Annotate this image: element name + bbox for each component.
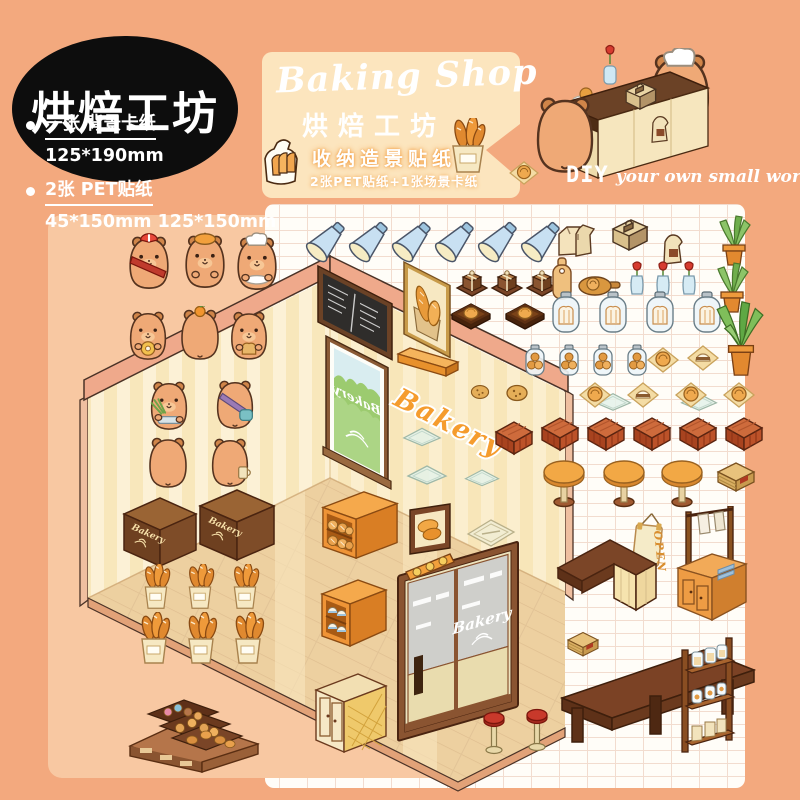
banner-tagline: DIY your own small world	[566, 163, 800, 188]
spec-size: 125*190mm	[45, 146, 276, 166]
backdrop-card	[48, 215, 265, 778]
bullet-icon	[26, 121, 35, 130]
spec-size: 45*150mm 125*150mm	[45, 212, 276, 232]
capybara-customer-sticker	[538, 99, 592, 172]
banner-title-zh: 烘焙工坊	[302, 106, 446, 143]
spec-list: 一张 背景卡纸 125*190mm 2张 PET贴纸 45*150mm 125*…	[26, 100, 276, 234]
backdrop-card-bottom	[265, 608, 467, 778]
spec-item: 2张 PET贴纸	[26, 176, 276, 206]
banner-counter	[560, 46, 708, 179]
poster-canvas: 烘焙工坊 一张 背景卡纸 125*190mm 2张 PET贴纸 45*150mm…	[0, 0, 800, 800]
capybara-chef-sticker	[652, 48, 708, 131]
bullet-icon	[26, 187, 35, 196]
banner-subtitle: 收纳造景贴纸	[312, 144, 456, 171]
spec-item: 一张 背景卡纸	[26, 110, 276, 140]
banner-note: 2张PET贴纸+1张场景卡纸	[310, 171, 478, 190]
